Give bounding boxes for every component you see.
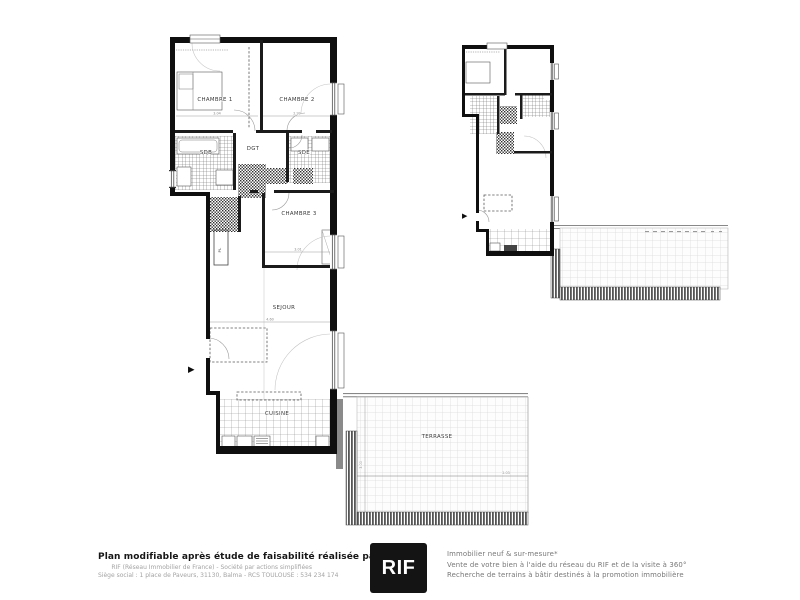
rif-logo-text: RIF [382,557,416,580]
window-sdb [169,170,176,188]
kitchen-dashed-cabinets [237,392,301,400]
footer-services-block: Immobilier neuf & sur-mesure* Vente de v… [447,549,687,581]
floor-plan-page: TERRASSE 2.03 3.00 [0,0,800,600]
entrance-arrow-icon: ▶ [188,365,195,375]
service-line-3: Recherche de terrains à bâtir destinés à… [447,570,687,581]
footer: Plan modifiable après étude de faisabili… [0,538,800,600]
window-chambre2 [330,82,344,116]
terrace-dim-height: 3.00 [359,461,363,469]
company-legal-line: RIF (Réseau Immobilier de France) - Soci… [98,564,312,571]
room-label-sejour: SEJOUR [273,305,295,311]
window-sejour [330,330,344,390]
plan-disclaimer-title: Plan modifiable après étude de faisabili… [98,552,312,562]
main-terrace: TERRASSE 2.03 3.00 [336,393,528,525]
dim-chambre2: 2.99 [293,112,301,116]
room-label-pl: PL [218,248,222,253]
dim-sejour: 4.60 [266,318,274,322]
company-address-line: Siège social : 1 place de Paveurs, 31130… [98,572,312,579]
room-label-sdb: SDB [200,150,212,156]
location-entrance-arrow-icon: ▶ [462,212,468,220]
service-line-2: Vente de votre bien à l'aide du réseau d… [447,560,687,571]
room-label-dgt: DGT [247,146,260,152]
terrace-dim-width: 2.03 [502,471,510,475]
footer-company-block: Plan modifiable après étude de faisabili… [98,552,312,579]
dim-chambre3: 3.01 [294,248,302,252]
room-label-chambre2: CHAMBRE 2 [279,97,314,103]
room-label-chambre1: CHAMBRE 1 [197,97,232,103]
room-label-chambre3: CHAMBRE 3 [281,211,316,217]
service-line-1: Immobilier neuf & sur-mesure* [447,549,687,560]
dim-chambre1: 3.04 [213,112,221,116]
window-chambre1-top [190,35,220,43]
location-plan: ▶ [462,43,728,300]
location-floors [470,95,551,252]
sejour-dashed-area [210,328,267,362]
window-chambre3 [330,234,344,270]
rif-logo: RIF [370,543,427,593]
location-terrace [551,225,728,300]
plans-drawing: TERRASSE 2.03 3.00 [0,0,800,540]
room-label-terrasse: TERRASSE [421,434,453,440]
room-label-cuisine: CUISINE [265,411,289,417]
room-label-sde: SDE [298,150,310,156]
